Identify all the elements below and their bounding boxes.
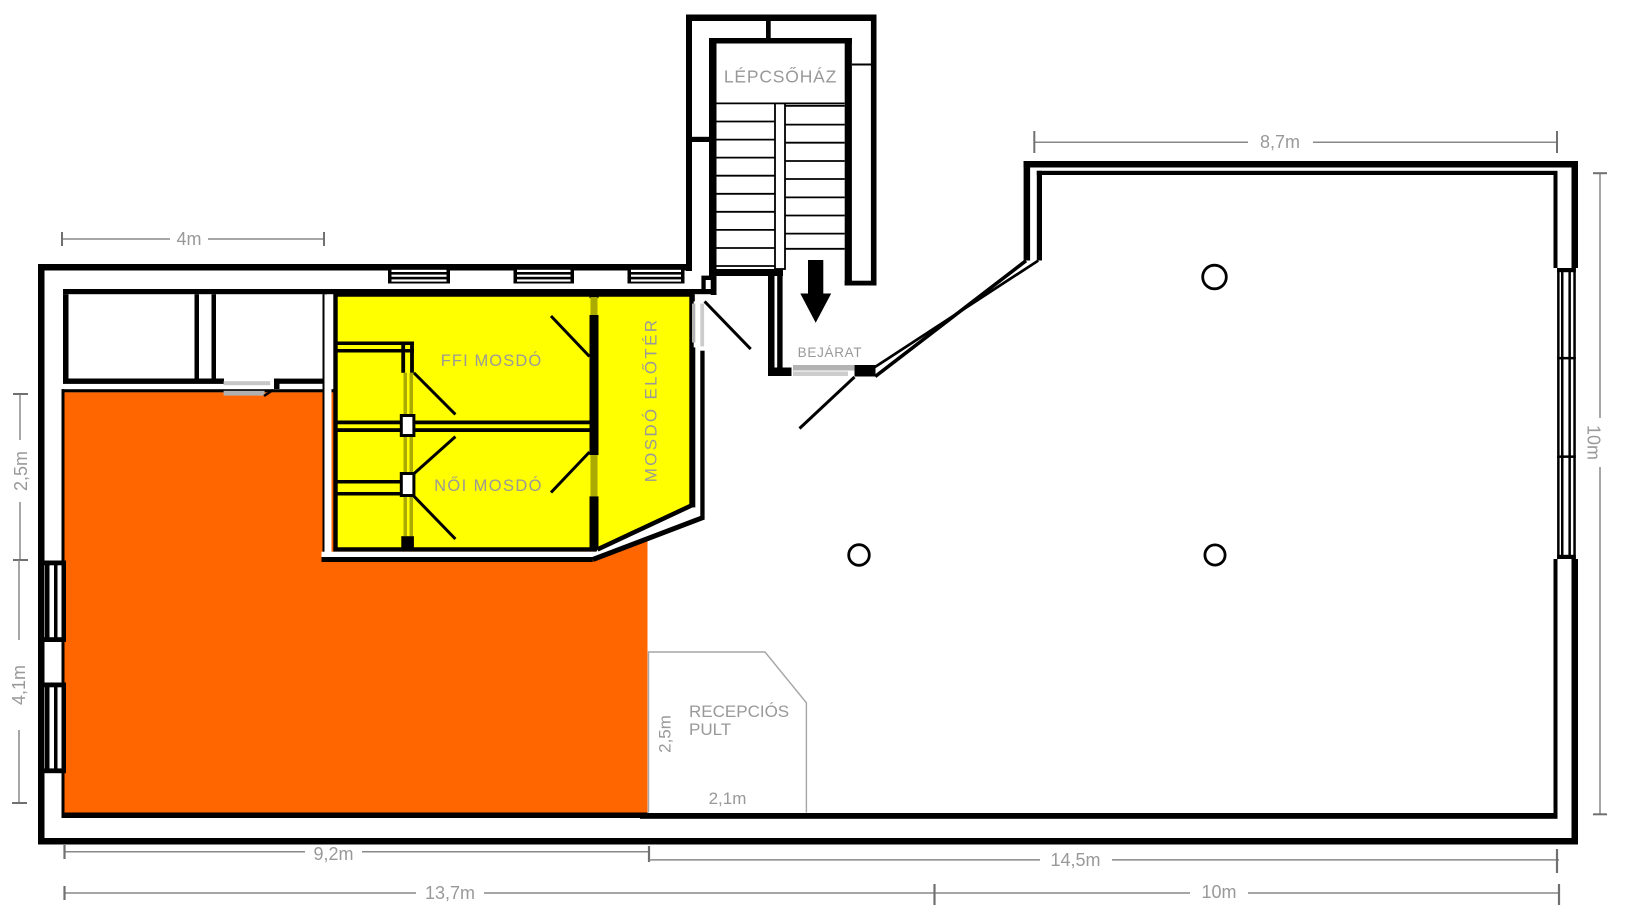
svg-text:9,2m: 9,2m	[313, 844, 353, 864]
svg-text:2,5m: 2,5m	[656, 715, 675, 753]
svg-text:NŐI MOSDÓ: NŐI MOSDÓ	[434, 476, 543, 495]
svg-text:RECEPCIÓS: RECEPCIÓS	[689, 702, 789, 721]
svg-text:BEJÁRAT: BEJÁRAT	[798, 345, 863, 360]
svg-text:10m: 10m	[1201, 882, 1236, 902]
svg-text:FFI MOSDÓ: FFI MOSDÓ	[441, 351, 543, 370]
svg-text:14,5m: 14,5m	[1050, 850, 1100, 870]
svg-text:PULT: PULT	[689, 720, 731, 739]
svg-text:4,1m: 4,1m	[9, 665, 29, 705]
svg-text:MOSDÓ ELŐTÉR: MOSDÓ ELŐTÉR	[642, 318, 661, 483]
svg-text:LÉPCSŐHÁZ: LÉPCSŐHÁZ	[724, 66, 837, 87]
svg-text:2,5m: 2,5m	[11, 451, 31, 491]
svg-text:10m: 10m	[1584, 425, 1604, 460]
svg-text:2,1m: 2,1m	[709, 789, 747, 808]
svg-text:8,7m: 8,7m	[1260, 132, 1300, 152]
svg-text:13,7m: 13,7m	[425, 883, 475, 903]
svg-text:4m: 4m	[176, 229, 201, 249]
